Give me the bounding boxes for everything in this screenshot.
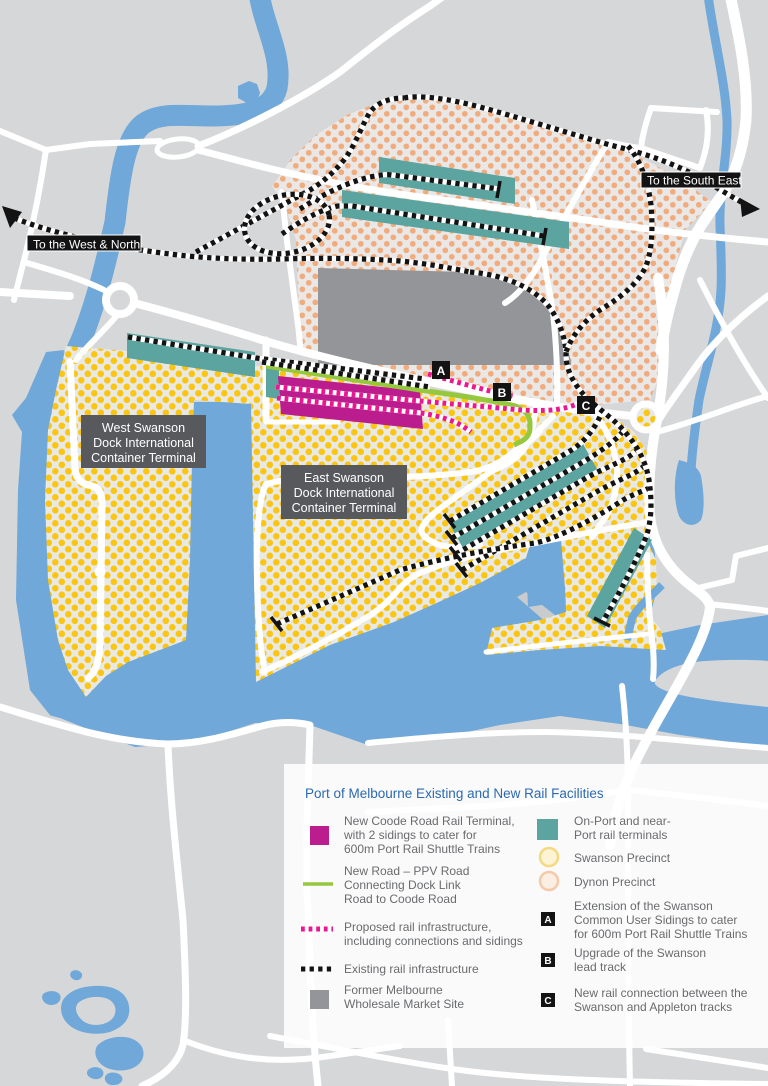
svg-text:A: A: [437, 364, 446, 378]
svg-text:Port of Melbourne Existing and: Port of Melbourne Existing and New Rail …: [305, 786, 604, 801]
svg-text:Connecting Dock Link: Connecting Dock Link: [344, 878, 462, 892]
svg-text:West Swanson: West Swanson: [102, 421, 185, 435]
svg-text:New Coode Road Rail Terminal,: New Coode Road Rail Terminal,: [344, 814, 515, 828]
svg-text:Road to Coode Road: Road to Coode Road: [344, 892, 457, 906]
svg-text:On-Port and near-: On-Port and near-: [574, 814, 671, 828]
svg-text:Dynon Precinct: Dynon Precinct: [574, 875, 656, 889]
svg-text:Port rail terminals: Port rail terminals: [574, 828, 667, 842]
svg-text:B: B: [544, 956, 551, 967]
svg-text:To the West & North: To the West & North: [33, 238, 140, 252]
svg-text:600m Port Rail Shuttle Trains: 600m Port Rail Shuttle Trains: [344, 842, 500, 856]
svg-text:Upgrade of the Swanson: Upgrade of the Swanson: [574, 946, 706, 960]
svg-text:for 600m Port Rail Shuttle Tra: for 600m Port Rail Shuttle Trains: [574, 927, 747, 941]
svg-text:Former Melbourne: Former Melbourne: [344, 983, 443, 997]
svg-text:with 2 sidings to cater for: with 2 sidings to cater for: [343, 828, 477, 842]
svg-text:Dock International: Dock International: [294, 486, 395, 500]
svg-text:Existing rail infrastructure: Existing rail infrastructure: [344, 962, 479, 976]
svg-text:Extension of the Swanson: Extension of the Swanson: [574, 899, 713, 913]
svg-text:lead track: lead track: [574, 960, 627, 974]
svg-text:East Swanson: East Swanson: [304, 471, 384, 485]
svg-text:Dock International: Dock International: [93, 436, 194, 450]
svg-text:Swanson and Appleton tracks: Swanson and Appleton tracks: [574, 1000, 732, 1014]
svg-text:Wholesale Market Site: Wholesale Market Site: [344, 997, 464, 1011]
svg-text:Common User Sidings to cater: Common User Sidings to cater: [574, 913, 737, 927]
svg-text:Proposed rail infrastructure,: Proposed rail infrastructure,: [344, 920, 491, 934]
svg-text:Container Terminal: Container Terminal: [91, 451, 196, 465]
svg-text:To the South East: To the South East: [647, 174, 742, 188]
svg-text:B: B: [498, 386, 507, 400]
svg-text:New Road – PPV Road: New Road – PPV Road: [344, 864, 469, 878]
svg-text:Swanson Precinct: Swanson Precinct: [574, 851, 671, 865]
svg-text:including connections and sidi: including connections and sidings: [344, 934, 523, 948]
svg-text:C: C: [544, 996, 551, 1007]
svg-text:C: C: [582, 399, 591, 413]
svg-text:A: A: [544, 915, 551, 926]
svg-text:Container Terminal: Container Terminal: [292, 501, 397, 515]
svg-text:New rail connection between th: New rail connection between the: [574, 986, 748, 1000]
